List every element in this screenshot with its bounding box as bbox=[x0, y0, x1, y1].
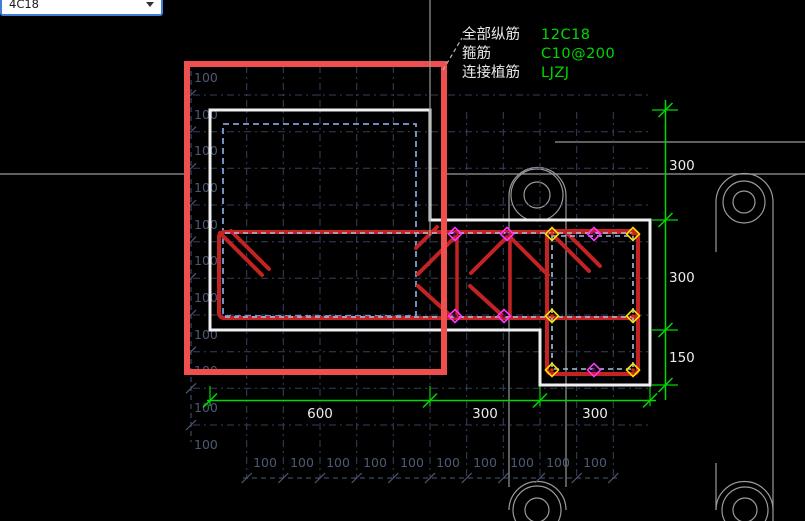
ghost-pile-circle bbox=[723, 181, 765, 223]
chevron-down-icon bbox=[146, 2, 154, 7]
chain-dim-label: 100 bbox=[194, 290, 218, 305]
chain-dim-label: 100 bbox=[290, 455, 314, 470]
annotation-value: LJZJ bbox=[541, 65, 570, 81]
chain-dim-label: 100 bbox=[253, 455, 277, 470]
tie-hook bbox=[511, 238, 548, 275]
chain-dim-label: 100 bbox=[194, 253, 218, 268]
annotation-label: 连接植筋 bbox=[462, 64, 541, 83]
chain-dim-label: 100 bbox=[400, 455, 424, 470]
annotation-value: 12C18 bbox=[541, 27, 591, 43]
ghost-pile-circle bbox=[525, 498, 549, 521]
dim-label: 300 bbox=[472, 406, 498, 422]
chain-dim-label: 100 bbox=[194, 143, 218, 158]
tie-hook bbox=[470, 286, 504, 317]
ghost-pile-circle bbox=[733, 498, 757, 521]
chain-dim-label: 100 bbox=[473, 455, 497, 470]
annotation-row: 连接植筋LJZJ bbox=[462, 62, 615, 81]
chain-dim-label: 100 bbox=[583, 455, 607, 470]
chain-dim-label: 100 bbox=[363, 455, 387, 470]
section-drawing: 1001001001001001001001001001001001001001… bbox=[0, 0, 805, 521]
stirrup-rect-bar[interactable] bbox=[219, 232, 638, 318]
ghost-pile-cap bbox=[716, 482, 773, 511]
chain-dim-label: 100 bbox=[510, 455, 534, 470]
annotation-row: 全部纵筋12C18 bbox=[462, 24, 615, 43]
cad-drawing-canvas[interactable]: 1001001001001001001001001001001001001001… bbox=[0, 0, 805, 521]
ghost-pile-circle bbox=[513, 486, 561, 521]
ghost-pile-circle bbox=[722, 487, 768, 521]
stirrup-rect-right[interactable] bbox=[547, 231, 638, 374]
rebar-spec-dropdown[interactable]: 4C18 bbox=[0, 0, 163, 16]
dim-label: 300 bbox=[582, 406, 608, 422]
dim-label: 300 bbox=[669, 158, 695, 174]
chain-dim-label: 100 bbox=[194, 70, 218, 85]
chain-dim-label: 100 bbox=[546, 455, 570, 470]
annotation-row: 箍筋C10@200 bbox=[462, 43, 615, 62]
tie-hook bbox=[556, 238, 589, 271]
dim-label: 600 bbox=[307, 406, 333, 422]
annotation-value: C10@200 bbox=[541, 46, 615, 62]
ghost-pile-circle bbox=[511, 169, 563, 221]
chain-dim-label: 100 bbox=[436, 455, 460, 470]
rebar-annotation: 全部纵筋12C18 箍筋C10@200 连接植筋LJZJ bbox=[462, 24, 615, 81]
dim-label: 150 bbox=[669, 350, 695, 366]
ghost-pile-circle bbox=[524, 182, 550, 208]
chain-dim-label: 100 bbox=[194, 217, 218, 232]
dim-label: 300 bbox=[669, 270, 695, 286]
chain-dim-label: 100 bbox=[326, 455, 350, 470]
chain-dim-label: 100 bbox=[194, 180, 218, 195]
ghost-pile-circle bbox=[733, 191, 755, 213]
tie-hook bbox=[567, 233, 600, 266]
dropdown-value: 4C18 bbox=[9, 0, 39, 11]
tie-hook bbox=[471, 237, 507, 273]
chain-dim-label: 100 bbox=[194, 437, 218, 452]
chain-dim-label: 100 bbox=[194, 400, 218, 415]
